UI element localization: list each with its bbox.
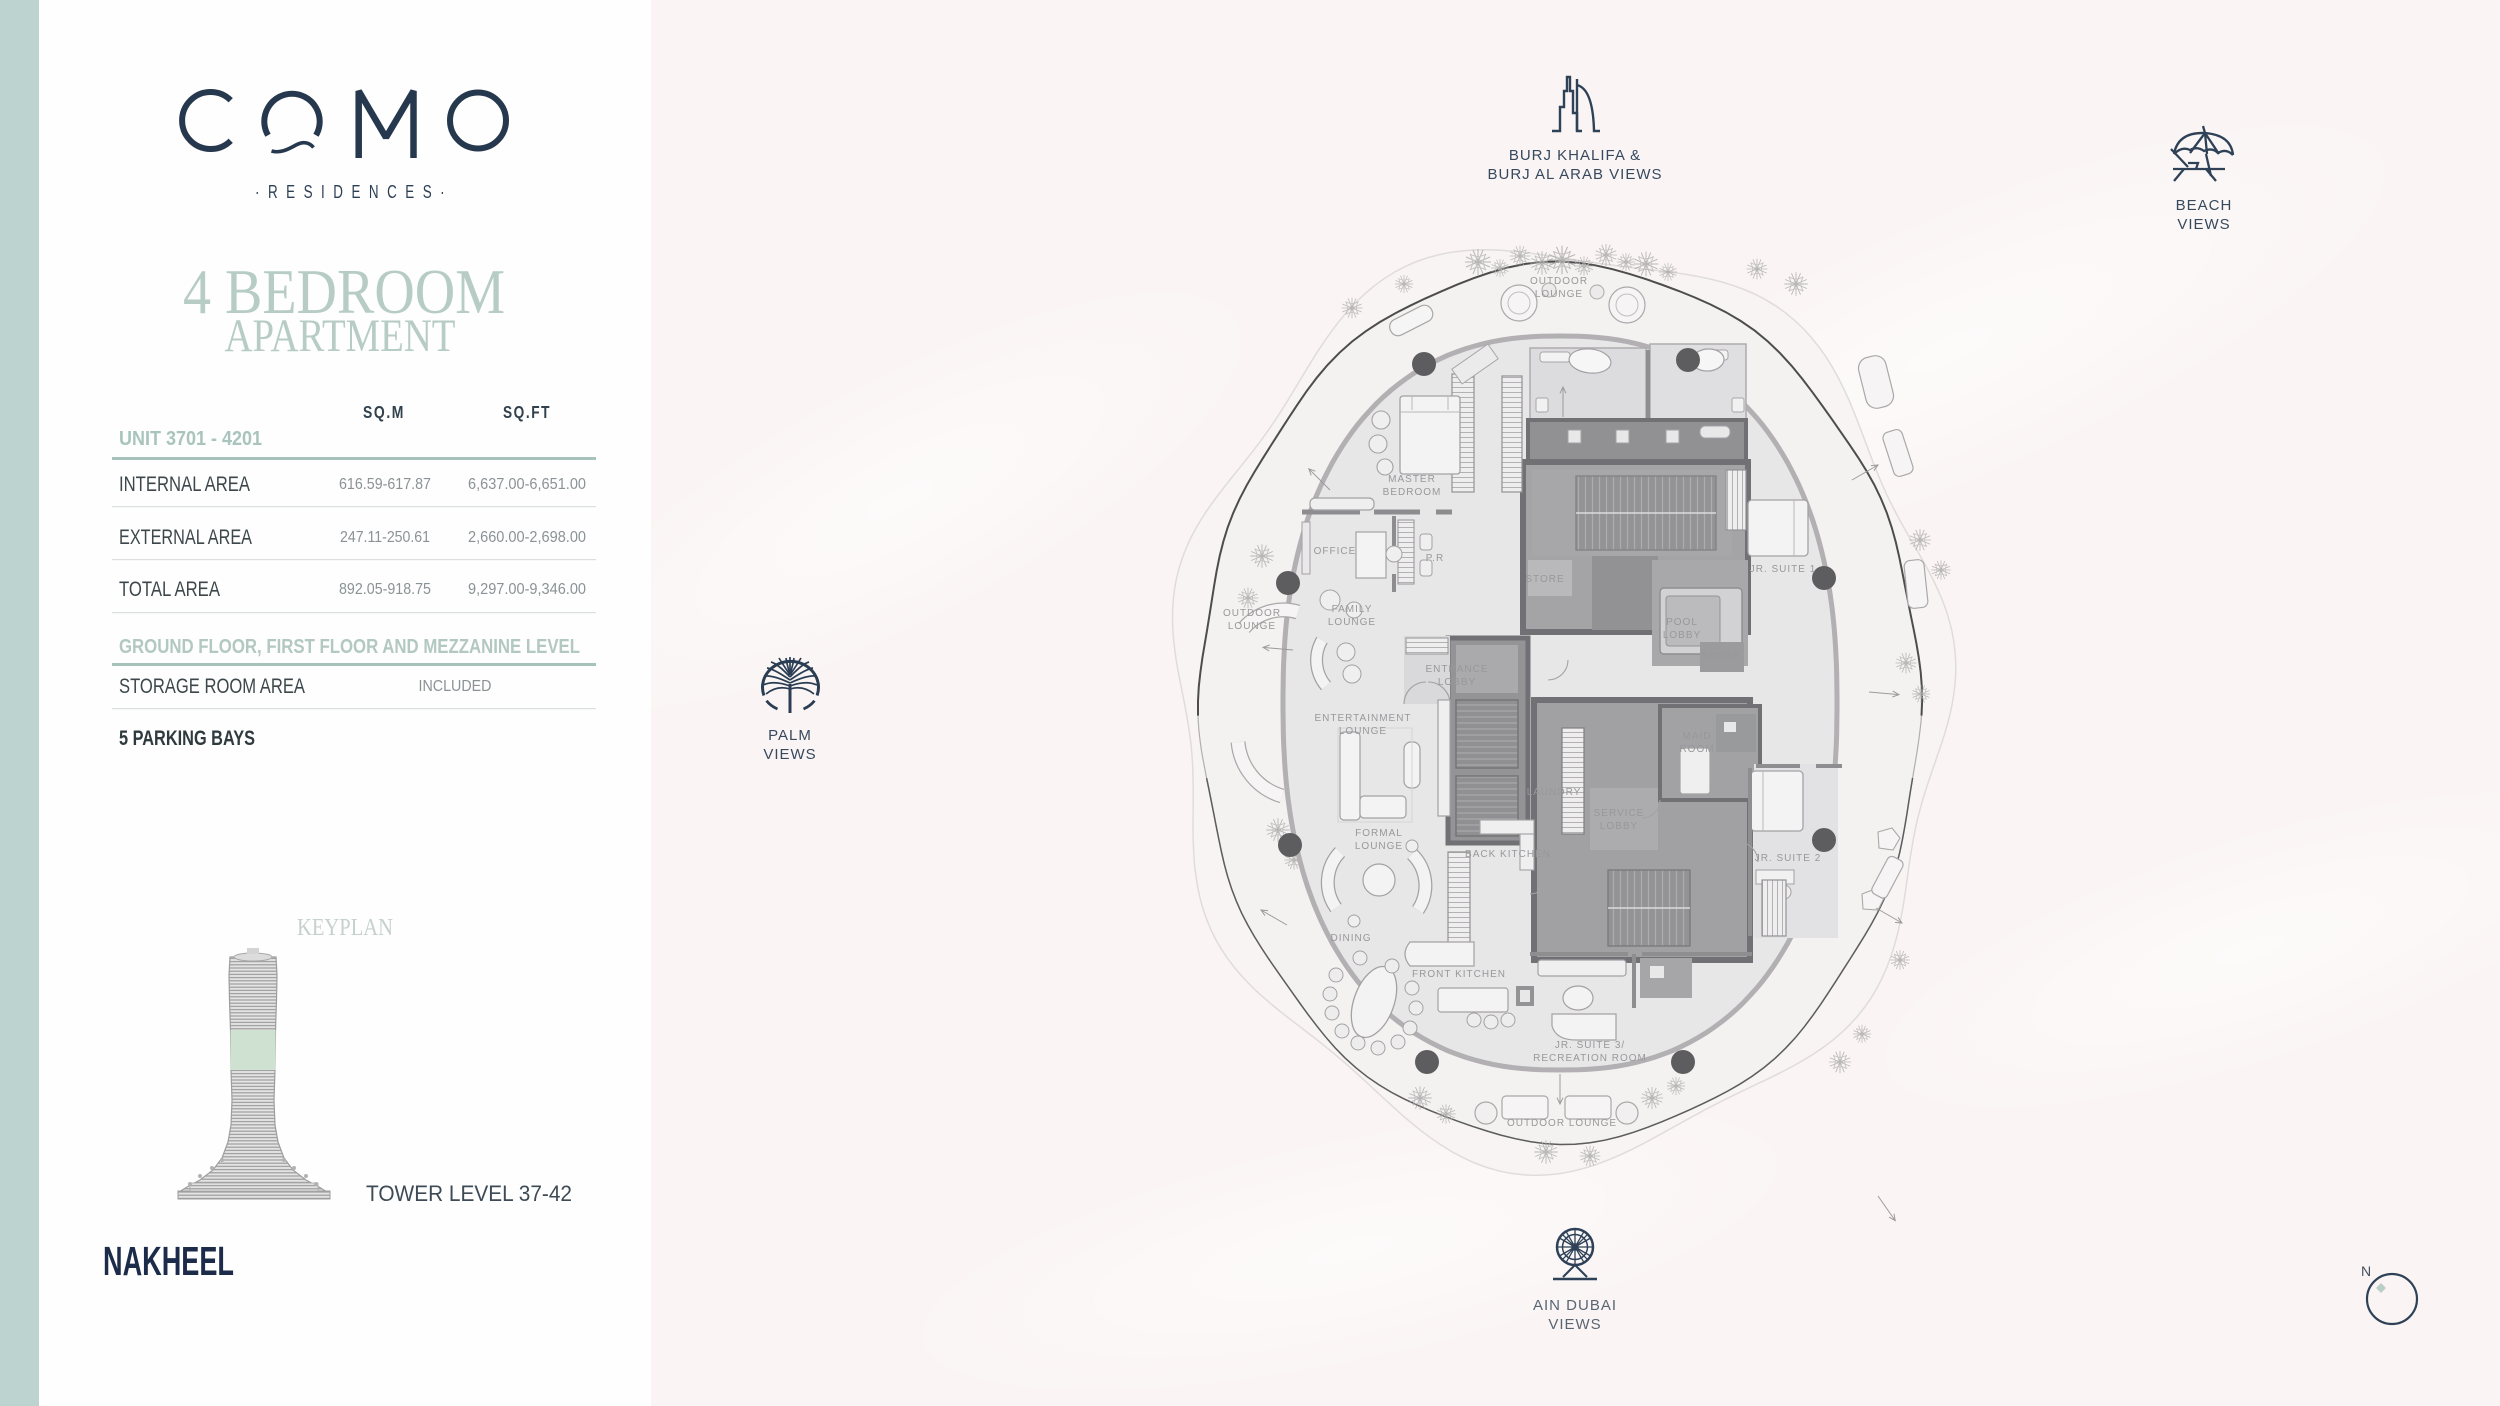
svg-text:BURJ KHALIFA &: BURJ KHALIFA &: [1509, 147, 1641, 164]
svg-text:ENTERTAINMENT: ENTERTAINMENT: [1314, 713, 1411, 724]
svg-text:TOTAL AREA: TOTAL AREA: [119, 578, 220, 601]
svg-text:EXTERNAL AREA: EXTERNAL AREA: [119, 526, 252, 549]
svg-text:INCLUDED: INCLUDED: [419, 678, 492, 695]
svg-text:LOUNGE: LOUNGE: [1228, 621, 1276, 632]
svg-text:LOUNGE: LOUNGE: [1339, 726, 1387, 737]
svg-text:MAID: MAID: [1683, 731, 1712, 742]
svg-text:ENTRANCE: ENTRANCE: [1425, 664, 1488, 675]
svg-text:STORE: STORE: [1525, 574, 1564, 585]
svg-text:OUTDOOR LOUNGE: OUTDOOR LOUNGE: [1507, 1118, 1617, 1129]
svg-text:INTERNAL AREA: INTERNAL AREA: [119, 473, 250, 496]
svg-text:2,660.00-2,698.00: 2,660.00-2,698.00: [468, 529, 586, 546]
svg-text:VIEWS: VIEWS: [763, 746, 816, 763]
svg-text:LOUNGE: LOUNGE: [1355, 841, 1403, 852]
svg-text:POOL: POOL: [1666, 617, 1698, 628]
svg-text:9,297.00-9,346.00: 9,297.00-9,346.00: [468, 581, 586, 598]
svg-text:SQ.M: SQ.M: [363, 402, 405, 422]
svg-text:BACK KITCHEN: BACK KITCHEN: [1465, 849, 1551, 860]
svg-text:BURJ AL ARAB VIEWS: BURJ AL ARAB VIEWS: [1488, 166, 1663, 183]
svg-text:N: N: [2361, 1263, 2371, 1279]
svg-text:P.R: P.R: [1426, 553, 1444, 564]
svg-text:5 PARKING BAYS: 5 PARKING BAYS: [119, 727, 255, 750]
svg-text:892.05-918.75: 892.05-918.75: [339, 581, 431, 598]
svg-text:LOUNGE: LOUNGE: [1535, 289, 1583, 300]
svg-text:6,637.00-6,651.00: 6,637.00-6,651.00: [468, 476, 586, 493]
svg-text:FRONT KITCHEN: FRONT KITCHEN: [1412, 969, 1506, 980]
svg-text:KEYPLAN: KEYPLAN: [297, 915, 393, 941]
svg-text:LOBBY: LOBBY: [1663, 630, 1701, 641]
svg-text:OFFICE: OFFICE: [1314, 546, 1357, 557]
svg-text:AIN DUBAI: AIN DUBAI: [1533, 1297, 1617, 1314]
svg-text:UNIT 3701 - 4201: UNIT 3701 - 4201: [119, 428, 262, 450]
svg-text:NAKHEEL: NAKHEEL: [103, 1238, 234, 1284]
svg-text:RECREATION ROOM: RECREATION ROOM: [1533, 1053, 1647, 1064]
svg-text:FAMILY: FAMILY: [1332, 604, 1373, 615]
svg-text:616.59-617.87: 616.59-617.87: [339, 476, 431, 493]
svg-text:OUTDOOR: OUTDOOR: [1223, 608, 1281, 619]
svg-text:VIEWS: VIEWS: [1548, 1316, 1601, 1333]
svg-text:LOBBY: LOBBY: [1600, 821, 1638, 832]
svg-text:SQ.FT: SQ.FT: [503, 402, 551, 422]
svg-text:SERVICE: SERVICE: [1594, 808, 1645, 819]
svg-text:BEDROOM: BEDROOM: [1383, 487, 1442, 498]
svg-text:STORAGE ROOM AREA: STORAGE ROOM AREA: [119, 675, 305, 698]
svg-text:PALM: PALM: [768, 727, 812, 744]
svg-text:STORE: STORE: [1701, 651, 1740, 662]
svg-text:LAUNDRY: LAUNDRY: [1527, 787, 1582, 798]
svg-text:BEACH: BEACH: [2176, 197, 2233, 214]
svg-text:MASTER: MASTER: [1388, 474, 1436, 485]
svg-text:ROOM: ROOM: [1679, 744, 1714, 755]
svg-text:GROUND FLOOR, FIRST FLOOR AND: GROUND FLOOR, FIRST FLOOR AND MEZZANINE …: [119, 636, 580, 658]
svg-text:APARTMENT: APARTMENT: [225, 310, 456, 362]
svg-text:JR. SUITE 3/: JR. SUITE 3/: [1555, 1040, 1625, 1051]
svg-text:JR. SUITE 2: JR. SUITE 2: [1755, 853, 1822, 864]
svg-text:VIEWS: VIEWS: [2177, 216, 2230, 233]
svg-text:247.11-250.61: 247.11-250.61: [340, 529, 430, 546]
svg-text:JR. SUITE 1: JR. SUITE 1: [1750, 564, 1817, 575]
svg-text:OUTDOOR: OUTDOOR: [1530, 276, 1588, 287]
svg-text:· R E S I D E N C E S ·: · R E S I D E N C E S ·: [255, 181, 447, 202]
svg-text:TOWER LEVEL 37-42: TOWER LEVEL 37-42: [366, 1181, 572, 1206]
svg-text:LOBBY: LOBBY: [1438, 677, 1476, 688]
svg-text:LOUNGE: LOUNGE: [1328, 617, 1376, 628]
svg-text:DINING: DINING: [1331, 933, 1372, 944]
svg-text:FORMAL: FORMAL: [1355, 828, 1403, 839]
